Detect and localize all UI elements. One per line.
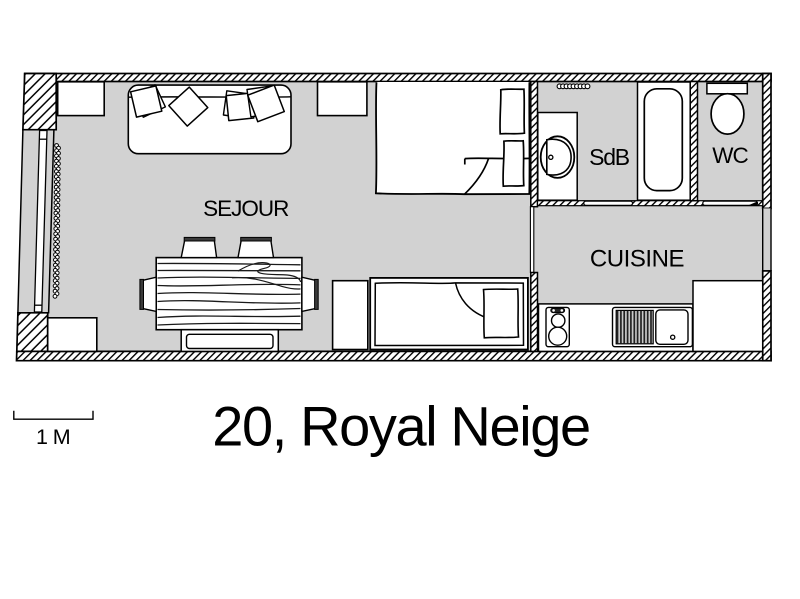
svg-text:WC: WC [712,143,748,168]
svg-text:SdB: SdB [589,144,630,170]
svg-text:20, Royal Neige: 20, Royal Neige [212,395,589,458]
svg-text:SEJOUR: SEJOUR [203,196,289,221]
svg-text:CUISINE: CUISINE [590,246,684,273]
svg-text:1 M: 1 M [36,425,70,449]
